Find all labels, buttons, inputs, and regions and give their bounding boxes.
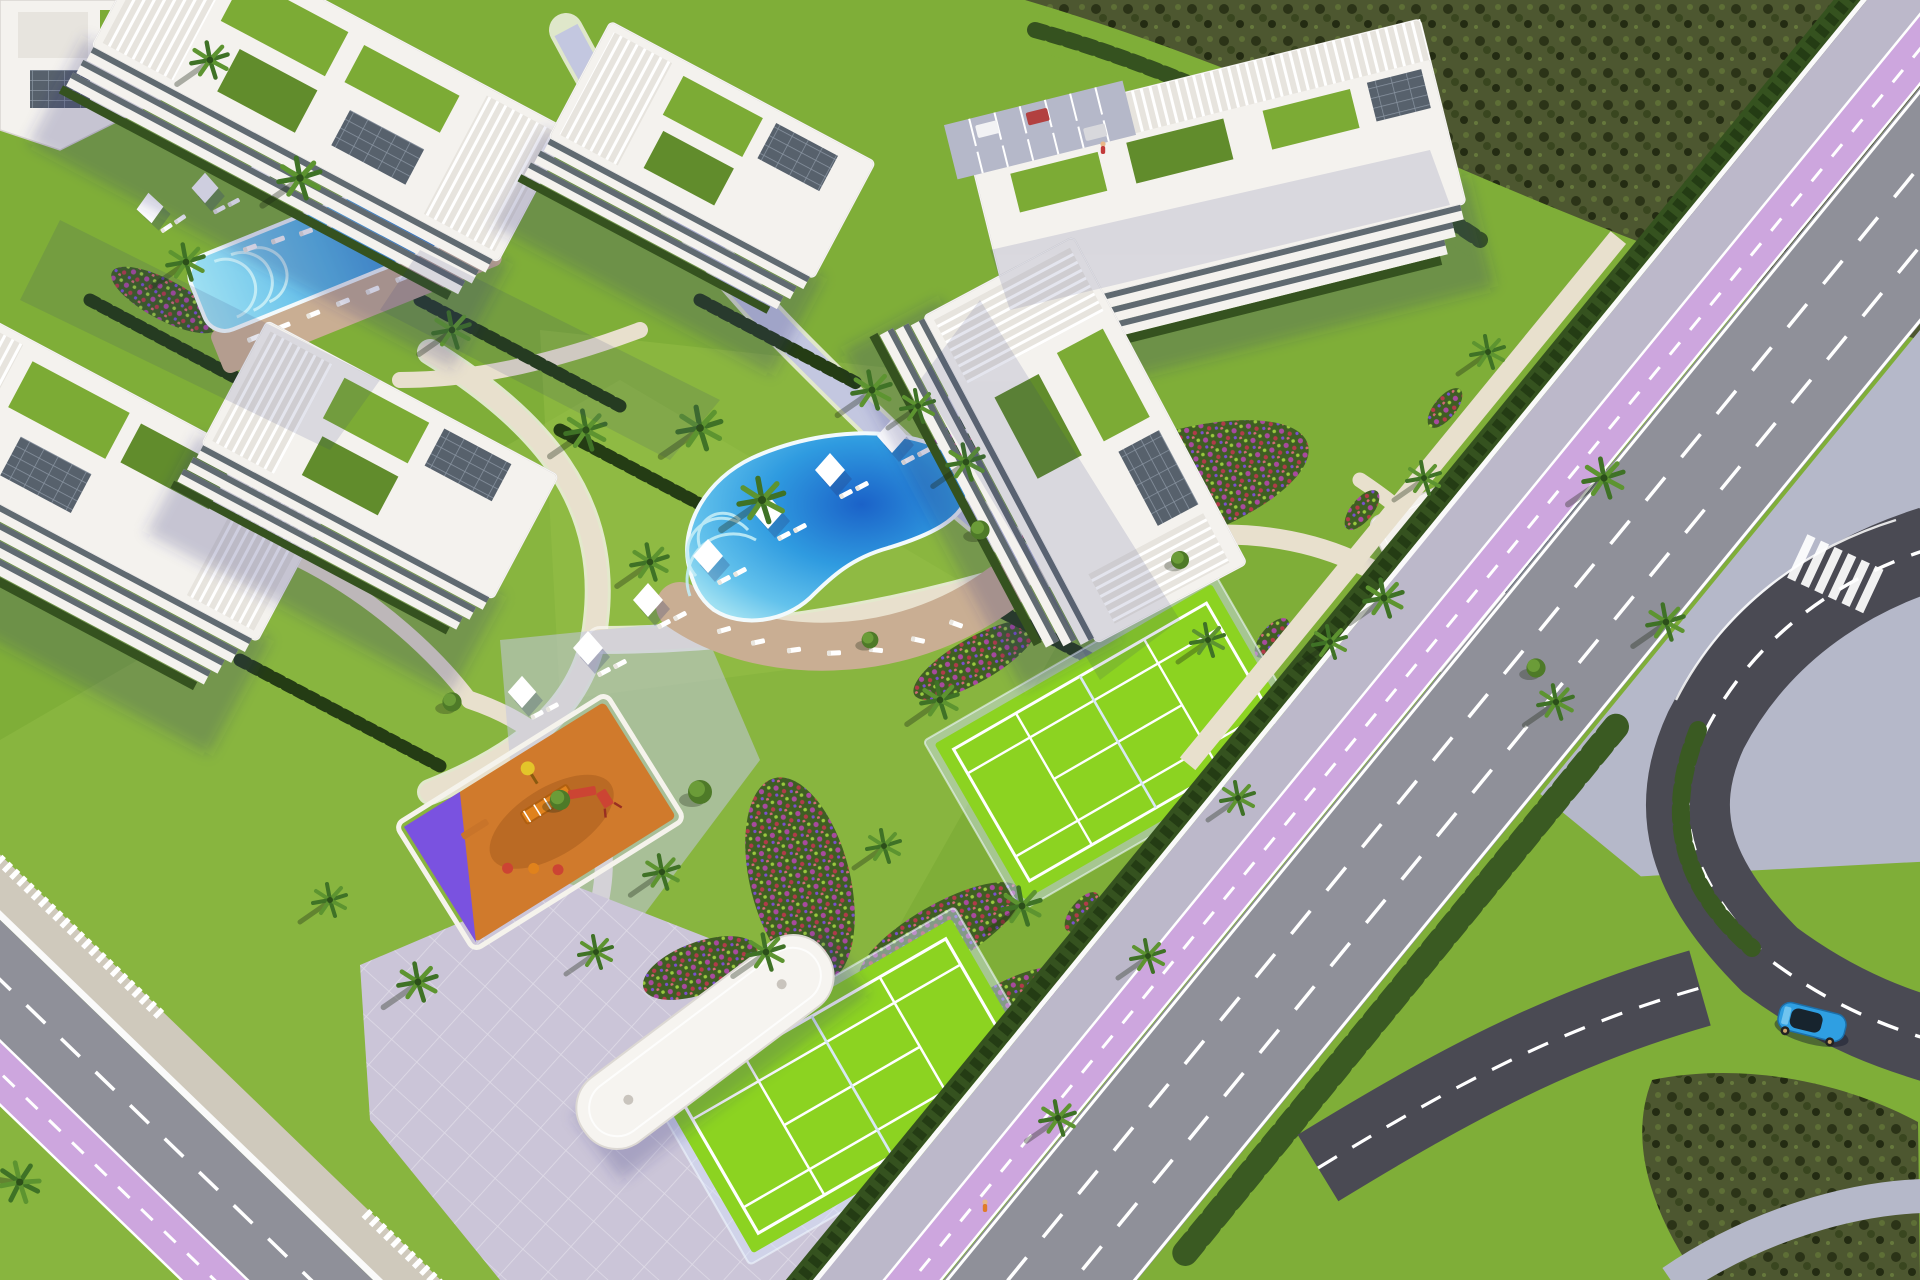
aerial-render-canvas [0, 0, 1920, 1280]
pedestrian [1100, 141, 1105, 154]
scrub-island [1642, 1073, 1920, 1280]
pedestrian [982, 1199, 987, 1212]
scene-svg [0, 0, 1920, 1280]
